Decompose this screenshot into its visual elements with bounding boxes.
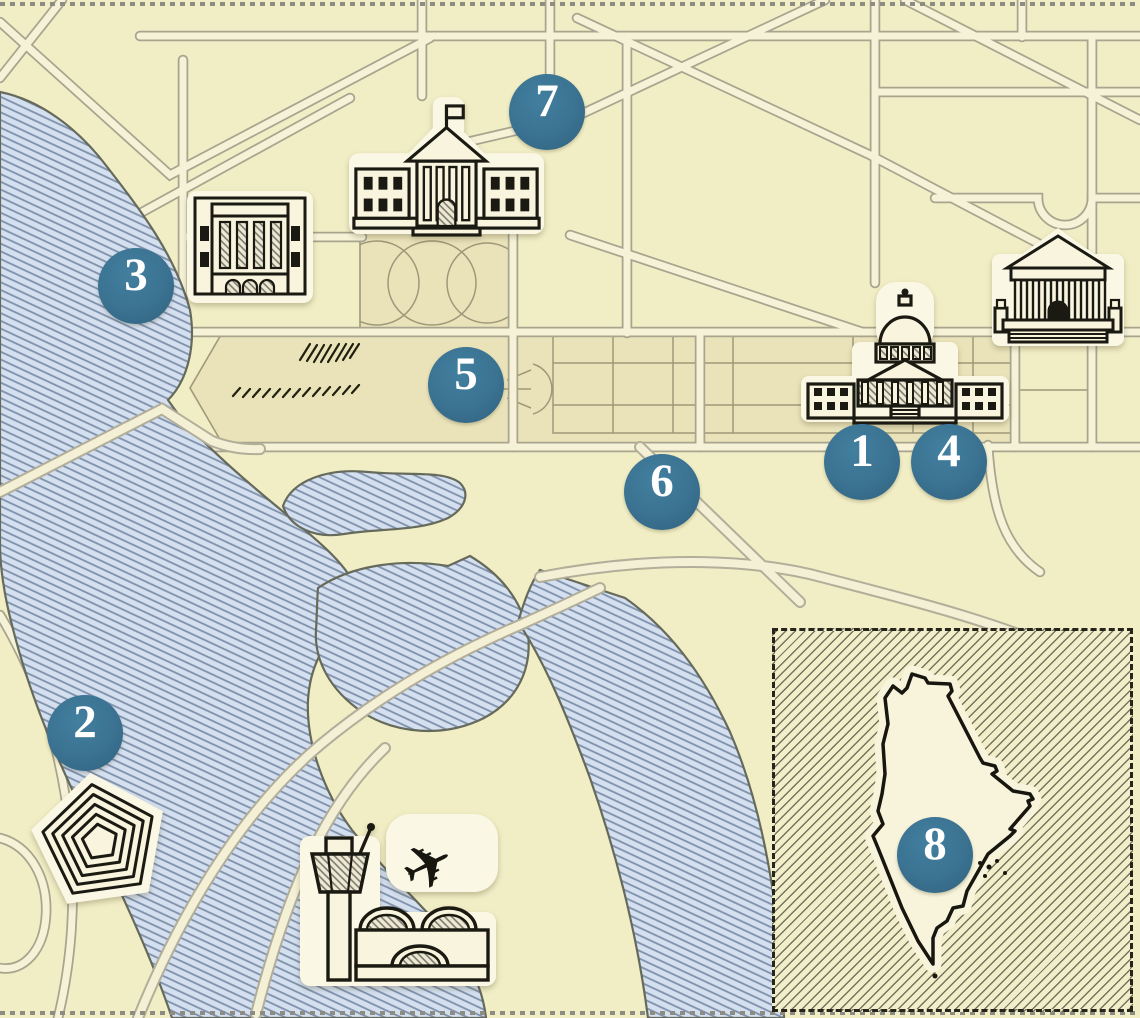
airport-icon[interactable]: ✈	[294, 812, 501, 989]
map-canvas: ✈ 1 2 3 4 5 6 7 8	[0, 0, 1140, 1018]
map-marker-4[interactable]: 4	[911, 424, 987, 500]
map-marker-3[interactable]: 3	[98, 248, 174, 324]
map-marker-2[interactable]: 2	[47, 695, 123, 771]
map-marker-1[interactable]: 1	[824, 424, 900, 500]
map-marker-5[interactable]: 5	[428, 347, 504, 423]
maine-inset[interactable]	[772, 628, 1133, 1012]
federal-building-icon[interactable]	[186, 188, 314, 306]
map-marker-6[interactable]: 6	[624, 454, 700, 530]
white-house-icon[interactable]	[348, 95, 545, 240]
top-dotted-border	[0, 2, 1140, 6]
map-marker-8[interactable]: 8	[897, 817, 973, 893]
supreme-court-icon[interactable]	[991, 224, 1125, 348]
maine-inset-art	[775, 631, 1130, 1009]
capitol-icon[interactable]	[800, 280, 1010, 425]
pentagon-icon[interactable]	[30, 768, 170, 913]
ellipse-park	[360, 233, 510, 333]
